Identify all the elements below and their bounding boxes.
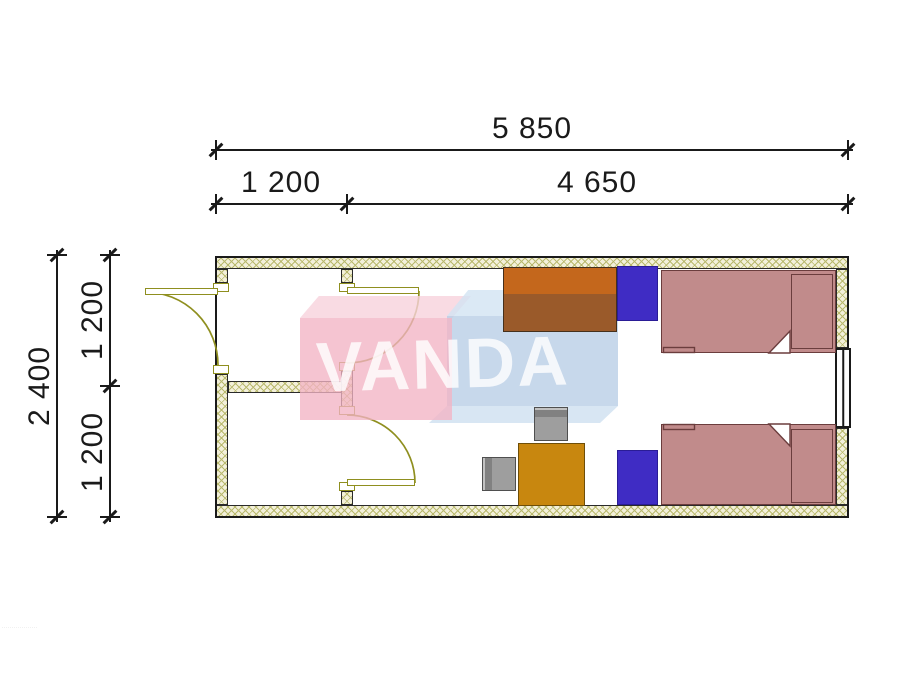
bed-upper — [661, 270, 836, 353]
bed-lower-pillow — [791, 429, 833, 503]
table — [518, 443, 585, 506]
entrance-door-jamb-bottom — [213, 365, 229, 374]
watermark-logo-text: VANDA — [315, 320, 571, 407]
dim-line — [211, 203, 853, 205]
dim-label-total-width: 5 850 — [492, 112, 572, 146]
entrance-door-leaf — [145, 288, 218, 295]
window — [835, 348, 851, 428]
floor-plan-canvas: 5 850 1 200 4 650 2 400 1 200 1 200 — [0, 0, 924, 700]
window-glazing-line — [842, 350, 844, 426]
chair-backrest — [483, 458, 492, 490]
chair-backrest — [535, 408, 567, 417]
dim-label-room-lower: 1 200 — [76, 412, 110, 492]
dim-label-vestibule-width: 1 200 — [241, 166, 321, 200]
nightstand-upper — [617, 266, 658, 321]
bed-upper-pillow — [791, 274, 833, 349]
chair-upper — [534, 407, 568, 441]
bed-lower — [661, 424, 836, 505]
chair-left — [482, 457, 516, 491]
upper-door-leaf — [347, 287, 419, 294]
nightstand-lower — [617, 450, 658, 505]
dim-label-room-width: 4 650 — [557, 166, 637, 200]
watermark-pink-box-top — [300, 296, 471, 318]
dim-label-total-depth: 2 400 — [23, 346, 57, 426]
entrance-door-arc — [145, 292, 218, 365]
dim-line — [211, 149, 853, 151]
desk — [503, 267, 617, 332]
corner-fine-print: ·················· — [2, 625, 38, 631]
lower-door-leaf — [347, 479, 415, 486]
dim-label-room-upper: 1 200 — [76, 280, 110, 360]
desk-top-edge — [504, 268, 616, 294]
watermark-blue-box-bottom — [429, 406, 618, 423]
